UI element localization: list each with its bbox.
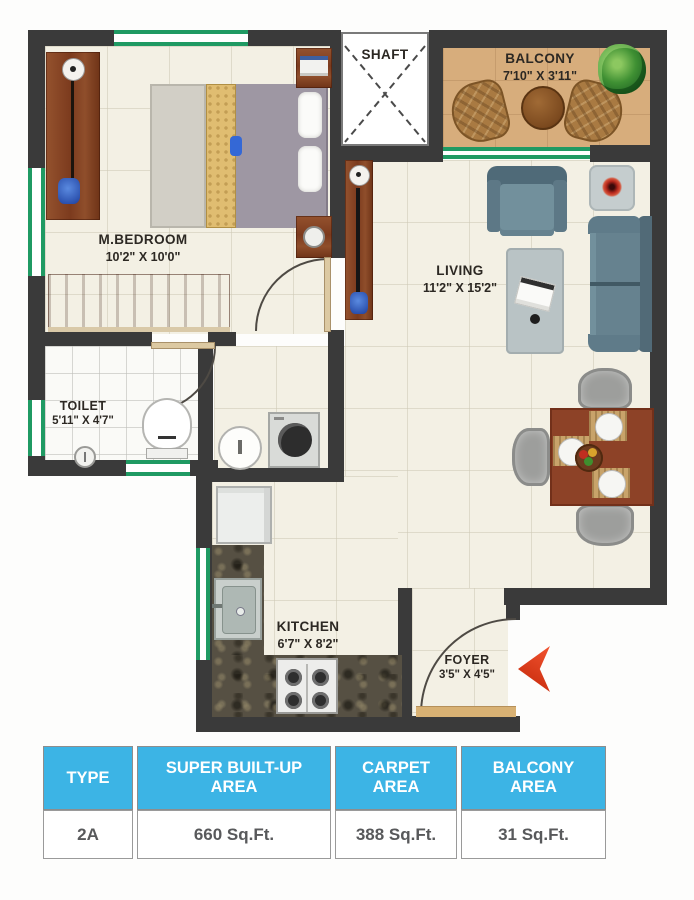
shaft-name: SHAFT (345, 46, 425, 64)
armchair (487, 166, 567, 238)
kitchen-label: KITCHEN 6'7" X 8'2" (238, 618, 378, 652)
washing-machine (268, 412, 320, 468)
spec-value-balcony-area: 31 Sq.Ft. (461, 810, 606, 859)
placemat-1 (589, 411, 627, 441)
foyer-name: FOYER (407, 652, 527, 668)
wall-top-mid (248, 30, 341, 46)
living-name: LIVING (380, 262, 540, 280)
nightstand-books (300, 56, 328, 76)
living-dims: 11'2" X 15'2" (380, 280, 540, 296)
toilet-door-leaf (152, 343, 214, 348)
spec-header-balcony-area: BALCONY AREA (461, 746, 606, 810)
spec-value-carpet-area: 388 Sq.Ft. (335, 810, 457, 859)
dining-chair-bottom (576, 504, 634, 546)
dresser-lamp (62, 58, 85, 81)
foyer-label: FOYER 3'5" X 4'5" (407, 652, 527, 683)
floorplan-page: SHAFT BALCONY 7'10" X 3'11" M.BEDROOM 10… (0, 0, 694, 900)
kitchen-name: KITCHEN (238, 618, 378, 636)
balcony-table (521, 86, 565, 130)
dining-table (550, 408, 654, 506)
coffee-table-bowl (530, 314, 540, 324)
dining-chair-top (578, 368, 632, 410)
bedroom-dresser (46, 52, 100, 220)
bed-clip-blue (230, 136, 242, 156)
utility-niche-bottom-wall (196, 468, 338, 482)
wall-shaft-balcony-divider (429, 30, 443, 148)
kitchen-left-window (196, 548, 210, 660)
flower-decor (599, 174, 625, 200)
toilet-wc (142, 398, 192, 450)
spec-value-super-builtup-area: 660 Sq.Ft. (137, 810, 331, 859)
nightstand-top (296, 48, 332, 88)
wall-right (650, 30, 667, 605)
bedroom-door-leaf (325, 258, 330, 331)
wall-left-upper (28, 30, 45, 172)
living-label: LIVING 11'2" X 15'2" (380, 262, 540, 296)
bedroom-bottom-wall-left (28, 332, 152, 346)
bedroom-name: M.BEDROOM (63, 231, 223, 249)
console-decor-blue (350, 292, 368, 314)
living-balcony-window (443, 147, 593, 159)
bedroom-right-wall-lower (328, 330, 344, 482)
nightstand-plate (303, 226, 325, 248)
bedroom-dims: 10'2" X 10'0" (63, 249, 223, 265)
gas-stove (276, 658, 338, 714)
bed-pillow-2 (298, 146, 322, 192)
tv-screen (356, 188, 360, 292)
nightstand-bottom (296, 216, 332, 258)
balcony-name: BALCONY (460, 50, 620, 68)
fruit-bowl (575, 444, 603, 472)
toilet-dims: 5'11" X 4'7" (32, 414, 134, 429)
console-lamp (349, 165, 370, 186)
washbasin (218, 426, 262, 470)
toilet-bottom-window (126, 460, 194, 476)
wardrobe (48, 274, 230, 332)
bottom-wall (196, 716, 520, 732)
wardrobe-edge (48, 327, 230, 332)
spec-header-super-builtup-area: SUPER BUILT-UP AREA (137, 746, 331, 810)
shaft-label: SHAFT (345, 46, 425, 64)
balcony-dims: 7'10" X 3'11" (460, 68, 620, 84)
toilet-wc-tank (146, 448, 188, 459)
spec-value-type: 2A (43, 810, 133, 859)
sofa (588, 216, 652, 352)
bed-pillow-1 (298, 92, 322, 138)
bed (150, 84, 328, 228)
bedroom-left-window (28, 168, 45, 280)
side-table (589, 165, 635, 211)
wall-under-balcony-right (590, 145, 652, 162)
bed-runner (206, 84, 236, 228)
tv-console (345, 160, 373, 320)
entry-threshold (416, 706, 516, 717)
toilet-name: TOILET (32, 398, 134, 414)
spec-header-type: TYPE (43, 746, 133, 810)
kitchen-dims: 6'7" X 8'2" (238, 636, 378, 652)
placemat-3 (592, 468, 630, 498)
toilet-shower-drain (74, 446, 96, 468)
balcony-label: BALCONY 7'10" X 3'11" (460, 50, 620, 84)
dining-chair-left (512, 428, 550, 486)
foyer-right-wall-stub (506, 600, 520, 620)
bed-mattress (150, 84, 206, 228)
fridge (216, 486, 272, 544)
bedroom-label: M.BEDROOM 10'2" X 10'0" (63, 231, 223, 265)
living-bottom-wall (504, 588, 654, 605)
spec-header-carpet-area: CARPET AREA (335, 746, 457, 810)
toilet-label: TOILET 5'11" X 4'7" (32, 398, 134, 429)
bedroom-top-window (114, 30, 256, 46)
spec-table: TYPE SUPER BUILT-UP AREA CARPET AREA BAL… (43, 746, 606, 859)
dresser-decor-blue (58, 178, 80, 204)
foyer-dims: 3'5" X 4'5" (407, 668, 527, 683)
